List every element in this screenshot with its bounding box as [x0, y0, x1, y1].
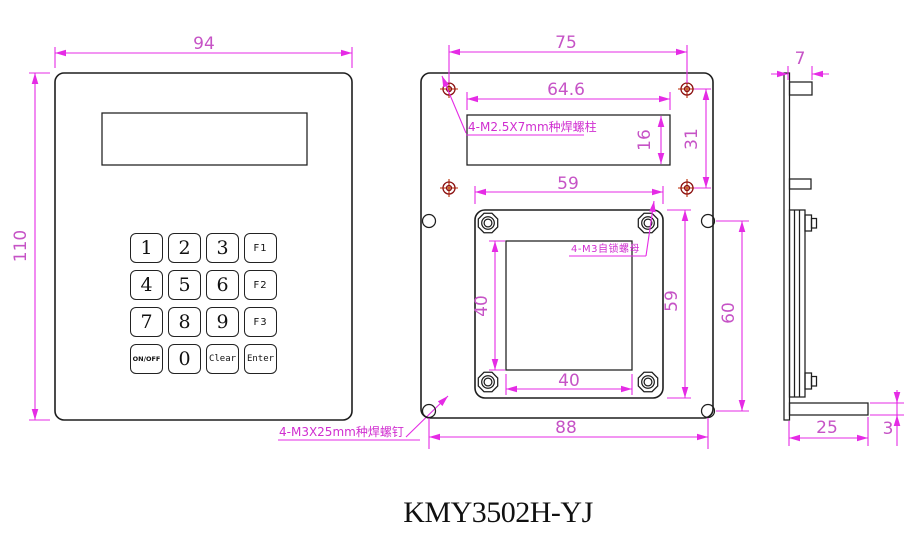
dim-lcd-cutout-width: 64.6	[467, 80, 670, 110]
key-label: 3	[216, 237, 228, 259]
dim-label: 31	[682, 128, 702, 150]
key-2: 2	[168, 233, 201, 263]
dim-label: 60	[719, 302, 739, 324]
cad-drawing-sheet: 94 110 4-M3X25mm种焊螺钉	[0, 0, 906, 537]
dim-label: 110	[11, 230, 31, 262]
dim-label: 59	[662, 290, 682, 312]
weld-standoff-marker	[440, 179, 458, 197]
key-f1: F1	[244, 233, 277, 263]
key-label: 4	[140, 274, 152, 296]
side-bottom-bracket	[790, 403, 869, 415]
dim-label: 59	[557, 174, 579, 194]
dim-standoff-span-x: 75	[449, 33, 687, 83]
dim-standoff-span-y: 31	[682, 89, 711, 188]
dim-bracket-depth: 25	[789, 417, 868, 446]
note-label: 4-M3自锁螺母	[571, 242, 640, 255]
dim-stud-span-x: 88	[429, 418, 708, 449]
key-f2: F2	[244, 270, 277, 300]
dim-label: 64.6	[547, 80, 585, 100]
side-stud-top	[805, 215, 817, 231]
key-6: 6	[206, 270, 239, 300]
key-label: F3	[253, 317, 267, 328]
key-enter: Enter	[244, 344, 277, 374]
side-standoff-mid	[790, 179, 812, 189]
dim-label: 88	[555, 418, 577, 438]
dim-standoff-depth: 7	[771, 49, 829, 80]
note-weld-screw: 4-M3X25mm种焊螺钉	[278, 396, 448, 440]
dim-label: 3	[883, 419, 894, 439]
key-on-off: ON/OFF	[130, 344, 163, 374]
key-label: 0	[178, 348, 190, 370]
part-number-title: KMY3502H-YJ	[403, 496, 593, 529]
lock-nut	[638, 213, 657, 232]
side-stud-bottom	[805, 373, 817, 389]
dim-keypad-cutout-height: 40	[472, 241, 505, 370]
dim-label: 16	[635, 129, 655, 151]
key-3: 3	[206, 233, 239, 263]
lock-nut	[478, 372, 497, 391]
keypad-cutout	[506, 241, 632, 370]
dim-bracket-thickness: 3	[870, 390, 904, 446]
key-label: 8	[178, 311, 190, 333]
note-label: 4-M2.5X7mm种焊螺柱	[468, 119, 597, 134]
side-standoff-top	[790, 82, 813, 95]
key-0: 0	[168, 344, 201, 374]
weld-stud-hole	[423, 215, 436, 228]
key-label: 7	[140, 311, 152, 333]
dim-stud-span-y: 60	[716, 221, 749, 411]
note-label: 4-M3X25mm种焊螺钉	[279, 424, 404, 439]
dim-bracket-height: 59	[662, 210, 691, 398]
weld-stud-hole	[423, 405, 436, 418]
dim-label: 94	[193, 34, 215, 54]
key-label: 2	[178, 237, 190, 259]
drawing-canvas: 94 110 4-M3X25mm种焊螺钉	[0, 0, 906, 537]
dim-label: 7	[795, 49, 806, 69]
dim-bracket-width: 59	[475, 174, 663, 204]
lock-nut	[478, 213, 497, 232]
key-label: Clear	[209, 354, 236, 364]
key-9: 9	[206, 307, 239, 337]
key-label: F2	[253, 280, 267, 291]
dim-label: 25	[816, 418, 838, 438]
key-clear: Clear	[206, 344, 239, 374]
key-label: 9	[216, 311, 228, 333]
side-view: 7 25 3	[771, 49, 904, 446]
key-1: 1	[130, 233, 163, 263]
key-7: 7	[130, 307, 163, 337]
rear-view: 75 64.6 16 31 59 40	[421, 33, 749, 449]
key-label: 1	[140, 237, 152, 259]
dim-front-width: 94	[55, 34, 352, 68]
key-label: 5	[178, 274, 190, 296]
dim-label: 75	[555, 33, 577, 53]
dim-lcd-cutout-height: 16	[635, 116, 661, 164]
side-keypad-module	[790, 210, 806, 397]
dim-label: 40	[472, 295, 492, 317]
weld-standoff-marker	[678, 179, 696, 197]
key-4: 4	[130, 270, 163, 300]
key-label: 6	[216, 274, 228, 296]
key-5: 5	[168, 270, 201, 300]
key-label: F1	[253, 243, 267, 254]
key-label: ON/OFF	[133, 355, 161, 363]
key-label: Enter	[247, 354, 274, 364]
dim-front-height: 110	[11, 73, 50, 420]
lcd-window	[102, 113, 307, 165]
dim-label: 40	[558, 371, 580, 391]
side-panel-plate	[784, 73, 790, 420]
lock-nut	[638, 372, 657, 391]
key-f3: F3	[244, 307, 277, 337]
dim-keypad-cutout-width: 40	[506, 371, 632, 395]
key-8: 8	[168, 307, 201, 337]
